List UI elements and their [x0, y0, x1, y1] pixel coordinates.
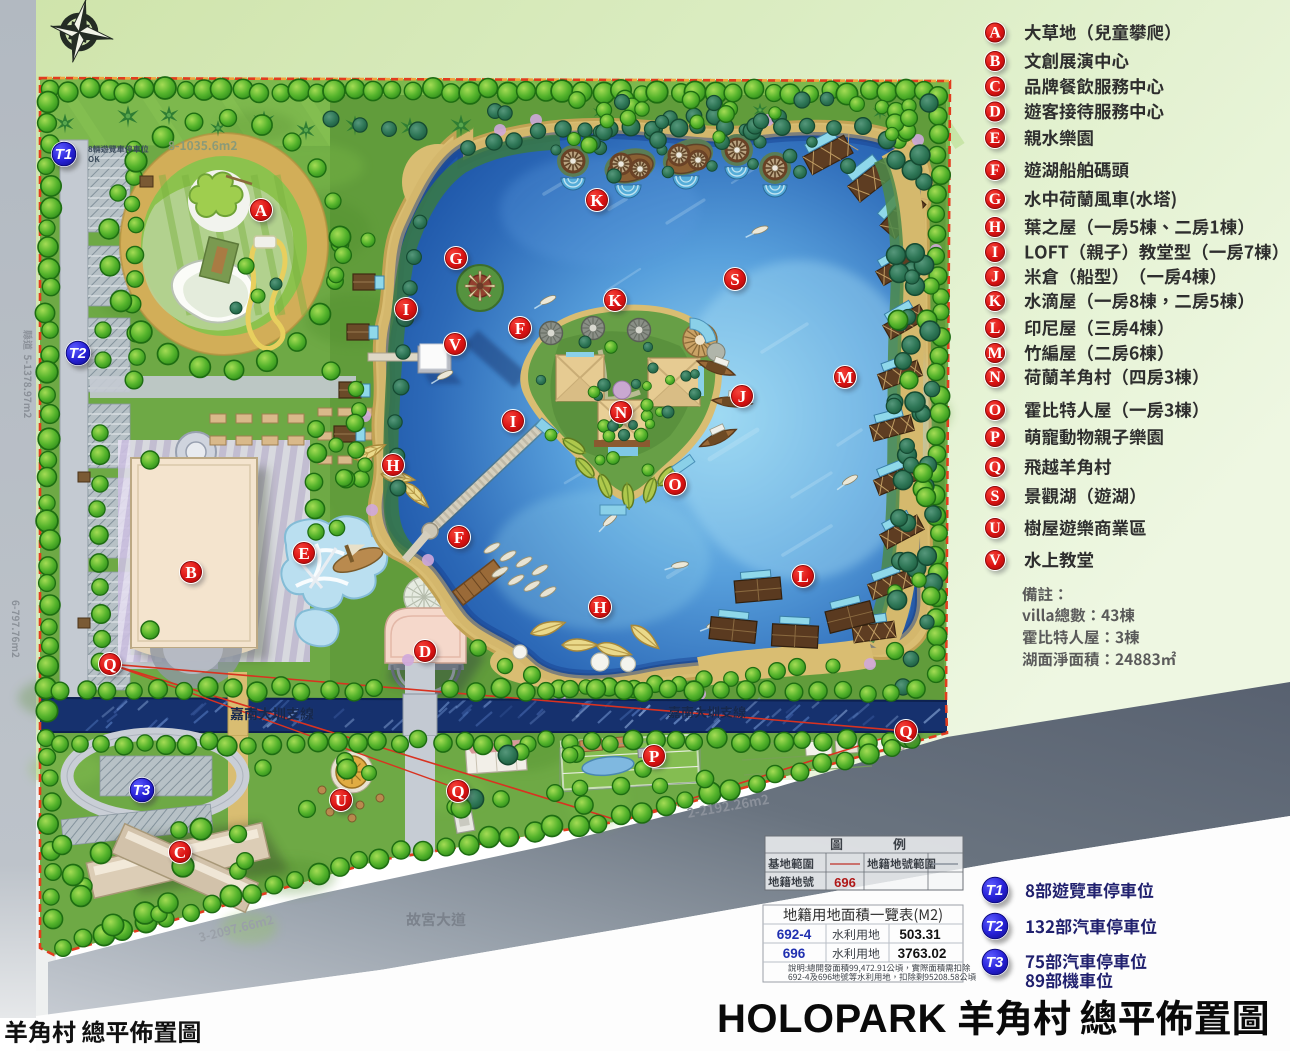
svg-text:M: M — [837, 368, 853, 387]
svg-text:503.31: 503.31 — [899, 927, 941, 942]
svg-text:G: G — [989, 191, 1002, 208]
svg-text:U: U — [989, 520, 1001, 537]
svg-text:696: 696 — [834, 875, 856, 890]
svg-text:O: O — [668, 475, 681, 494]
svg-text:I: I — [510, 412, 517, 431]
svg-text:A: A — [255, 201, 268, 220]
svg-text:U: U — [335, 791, 347, 810]
svg-text:M: M — [987, 345, 1002, 362]
svg-text:T2: T2 — [986, 918, 1004, 935]
svg-text:692-4: 692-4 — [777, 927, 812, 942]
svg-text:I: I — [992, 244, 998, 261]
svg-text:3763.02: 3763.02 — [898, 946, 947, 961]
svg-text:S: S — [991, 488, 1000, 505]
svg-text:H: H — [386, 456, 399, 475]
svg-text:E: E — [298, 544, 309, 563]
svg-text:D: D — [989, 104, 1001, 121]
svg-text:I: I — [403, 300, 410, 319]
svg-text:V: V — [449, 335, 462, 354]
svg-text:O: O — [989, 402, 1001, 419]
svg-text:HOLOPARK: HOLOPARK — [717, 997, 947, 1041]
svg-text:F: F — [454, 528, 464, 547]
svg-text:H: H — [989, 219, 1002, 236]
svg-text:Q: Q — [451, 782, 464, 801]
svg-text:B: B — [990, 53, 1001, 70]
svg-text:K: K — [608, 291, 622, 310]
svg-text:K: K — [989, 293, 1002, 310]
svg-text:P: P — [990, 429, 1000, 446]
svg-text:A: A — [989, 25, 1001, 42]
svg-text:696: 696 — [783, 946, 806, 961]
svg-text:C: C — [174, 843, 186, 862]
svg-text:Q: Q — [899, 722, 912, 741]
svg-text:V: V — [989, 552, 1001, 569]
svg-text:C: C — [989, 79, 1001, 96]
svg-text:T3: T3 — [133, 782, 151, 799]
svg-text:Q: Q — [989, 459, 1001, 476]
svg-text:T2: T2 — [69, 345, 87, 362]
svg-text:Q: Q — [103, 655, 116, 674]
svg-text:L: L — [797, 567, 808, 586]
svg-text:L: L — [990, 320, 1001, 337]
svg-text:J: J — [738, 387, 747, 406]
svg-text:D: D — [419, 642, 431, 661]
svg-text:J: J — [991, 269, 999, 286]
svg-text:T1: T1 — [986, 882, 1004, 899]
svg-text:P: P — [649, 747, 659, 766]
svg-text:F: F — [990, 162, 1000, 179]
svg-text:N: N — [989, 369, 1001, 386]
svg-text:B: B — [185, 563, 196, 582]
svg-text:S: S — [730, 270, 739, 289]
svg-text:N: N — [615, 403, 628, 422]
svg-text:G: G — [449, 249, 462, 268]
svg-text:K: K — [590, 191, 604, 210]
svg-text:E: E — [990, 130, 1001, 147]
svg-text:T3: T3 — [986, 954, 1004, 971]
svg-text:T1: T1 — [55, 146, 73, 163]
svg-text:H: H — [593, 598, 606, 617]
svg-text:F: F — [515, 319, 525, 338]
